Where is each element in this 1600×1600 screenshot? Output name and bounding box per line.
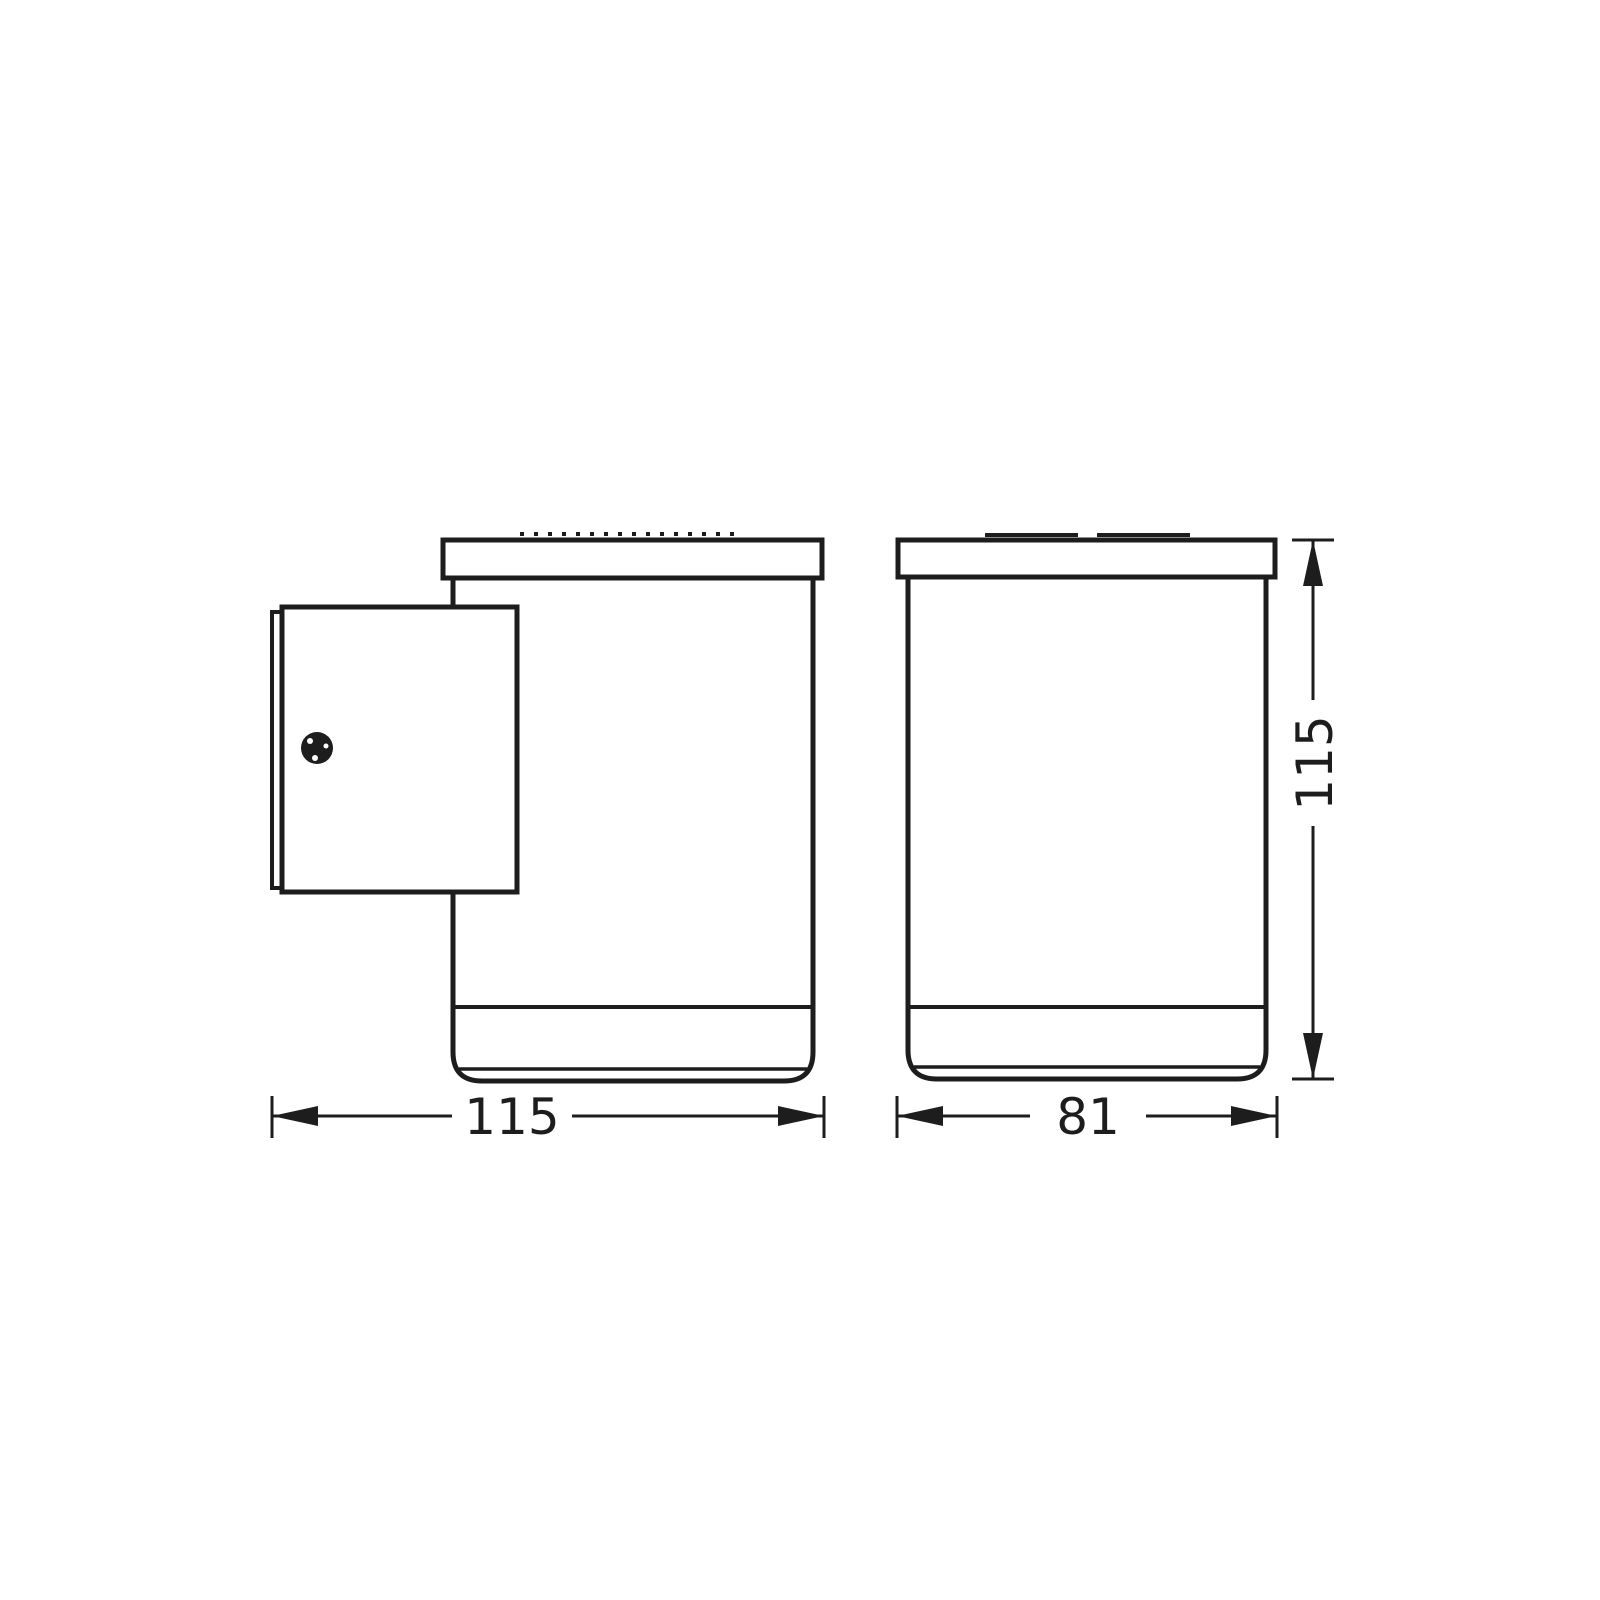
screw-glint-dot <box>312 755 318 761</box>
dimension-side-width: 115 <box>272 1088 824 1146</box>
dimension-label-side-width: 115 <box>464 1088 559 1146</box>
front-view <box>898 535 1275 1079</box>
front-view-top-cap <box>898 540 1275 577</box>
arrowhead-right-icon <box>778 1106 824 1126</box>
dimension-height: 115 <box>1286 540 1344 1079</box>
screw-glint-dot <box>324 744 329 749</box>
arrowhead-down-icon <box>1303 1033 1323 1079</box>
arrowhead-right-icon <box>1231 1106 1277 1126</box>
dimension-label-height: 115 <box>1286 715 1344 810</box>
screw-glint-dot <box>307 738 313 744</box>
arrowhead-left-icon <box>897 1106 943 1126</box>
dimension-label-front-width: 81 <box>1056 1088 1120 1146</box>
dimension-drawing-svg: 115 81 115 <box>0 0 1600 1600</box>
arrowhead-left-icon <box>272 1106 318 1126</box>
mounting-screw <box>301 732 333 764</box>
arrowhead-up-icon <box>1303 540 1323 586</box>
dimension-front-width: 81 <box>897 1088 1277 1146</box>
technical-drawing-canvas: 115 81 115 <box>0 0 1600 1600</box>
side-view-top-cap <box>443 540 822 578</box>
front-view-body-outline <box>908 577 1266 1079</box>
side-view <box>272 534 822 1081</box>
